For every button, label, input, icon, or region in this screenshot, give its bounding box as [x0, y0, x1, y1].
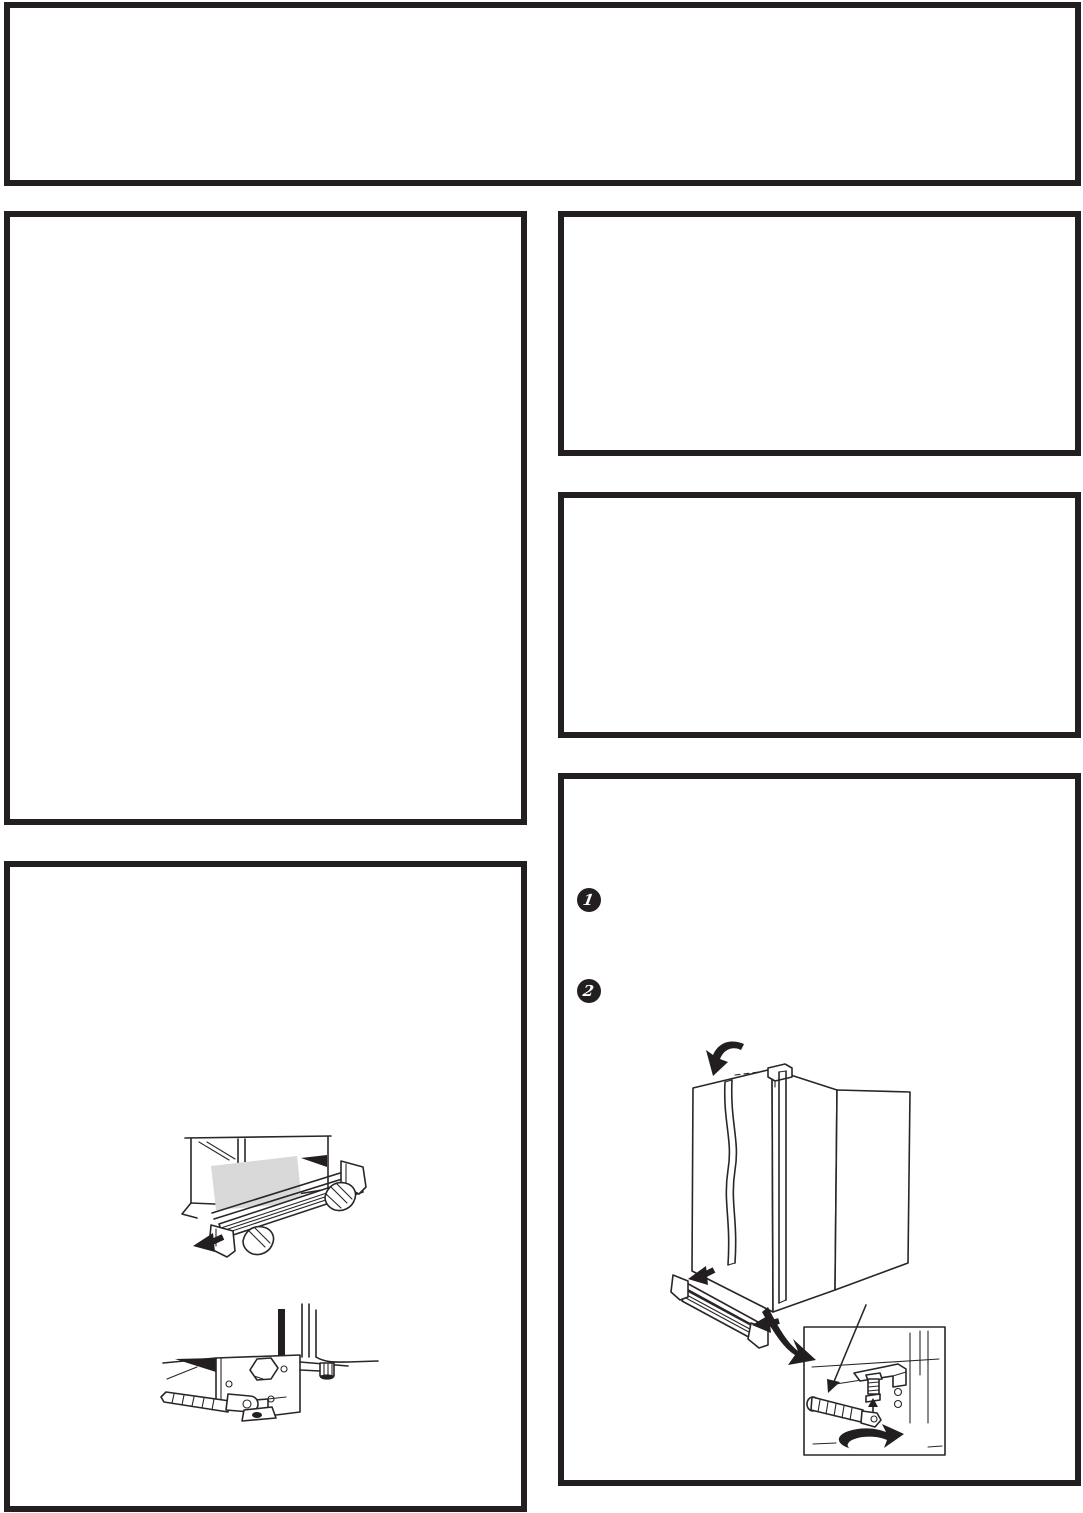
- top-banner-box: [4, 2, 1081, 186]
- top-curved-arrow-icon: [706, 1041, 744, 1076]
- base-grille-removal-illustration: [155, 1115, 385, 1265]
- step-2-number: 2: [581, 984, 594, 999]
- right-upper-box: [558, 211, 1081, 456]
- step-2-badge: 2: [577, 979, 601, 1003]
- left-upper-box: [4, 211, 527, 825]
- leveling-leg-wrench-illustration: [150, 1300, 385, 1435]
- step-1-badge: 1: [577, 888, 601, 912]
- manual-page: 1 2: [0, 0, 1083, 1513]
- right-middle-box: [558, 492, 1081, 738]
- refrigerator-leveling-illustration: [640, 1035, 960, 1465]
- refrigerator-body: [692, 1064, 910, 1312]
- step-1-number: 1: [581, 893, 594, 908]
